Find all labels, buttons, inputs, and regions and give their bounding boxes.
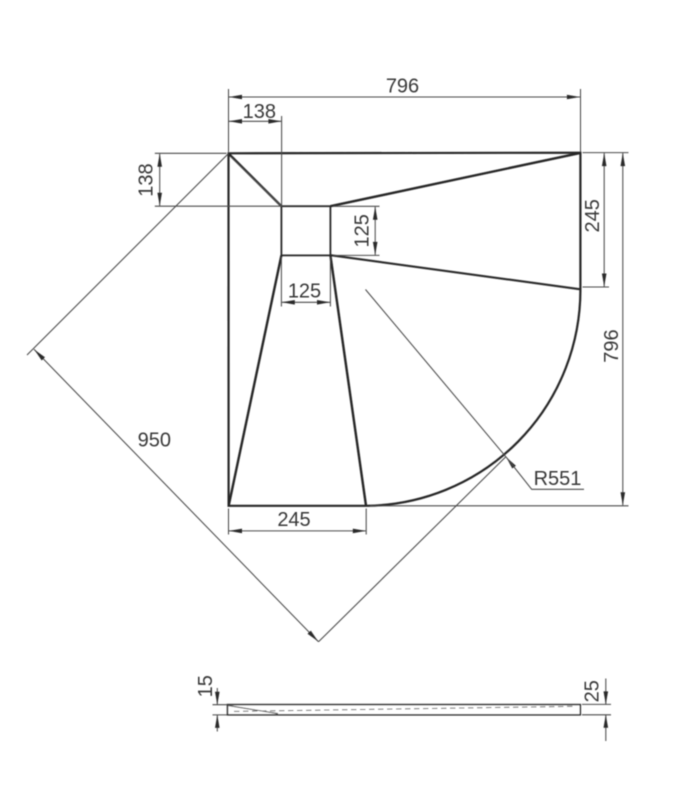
svg-text:138: 138 (136, 163, 158, 196)
svg-text:950: 950 (138, 430, 171, 452)
svg-text:796: 796 (386, 76, 419, 98)
svg-text:25: 25 (582, 680, 604, 702)
svg-text:796: 796 (601, 329, 623, 362)
svg-text:R551: R551 (534, 468, 582, 490)
svg-text:138: 138 (243, 101, 276, 123)
svg-text:245: 245 (277, 509, 310, 531)
svg-text:125: 125 (288, 281, 321, 303)
svg-text:15: 15 (195, 675, 217, 697)
svg-text:125: 125 (352, 214, 374, 247)
svg-text:245: 245 (582, 199, 604, 232)
